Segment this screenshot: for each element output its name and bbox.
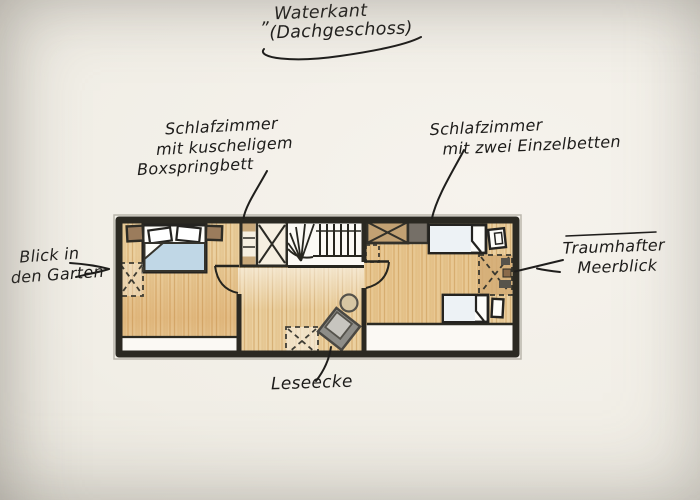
sea-window-dashed [479, 255, 512, 295]
double-bed [143, 225, 206, 272]
bedside-table-top [488, 228, 506, 249]
bedside-table-bottom [492, 299, 504, 318]
single-bed-top [429, 225, 506, 253]
quote-mark: „ [261, 8, 271, 30]
pillow-left [148, 228, 172, 244]
pillow-right [176, 226, 200, 242]
single-bed-bottom [443, 295, 503, 322]
plan-title: „Waterkant (Dachgeschoss) [261, 0, 413, 45]
floor-plan-sketch-page: „Waterkant (Dachgeschoss) Schlafzimmer m… [0, 0, 700, 500]
leader-bedroom1 [244, 171, 268, 218]
winder-staircase [288, 222, 364, 267]
annotation-reading-corner: Leseecke [271, 372, 353, 396]
annotation-bedroom-twin: Schlafzimmer mit zwei Einzelbetten [429, 112, 621, 159]
garden-window-dashed [120, 263, 143, 296]
annotation-bedroom-boxspring: Schlafzimmer mit kuscheligem Boxspringbe… [135, 113, 295, 180]
built-in-closet [241, 222, 287, 266]
wardrobe [367, 222, 428, 243]
sea-arrow-lower [537, 269, 560, 273]
nightstand-left [127, 226, 144, 242]
annotation-garden-view: Blick in den Garten [9, 242, 105, 287]
nightstand-right [206, 226, 222, 241]
leader-bedroom2 [432, 150, 464, 218]
chimney-block [408, 222, 428, 243]
side-table [341, 295, 358, 312]
annotation-sea-view: Traumhafter Meerblick [562, 235, 666, 278]
